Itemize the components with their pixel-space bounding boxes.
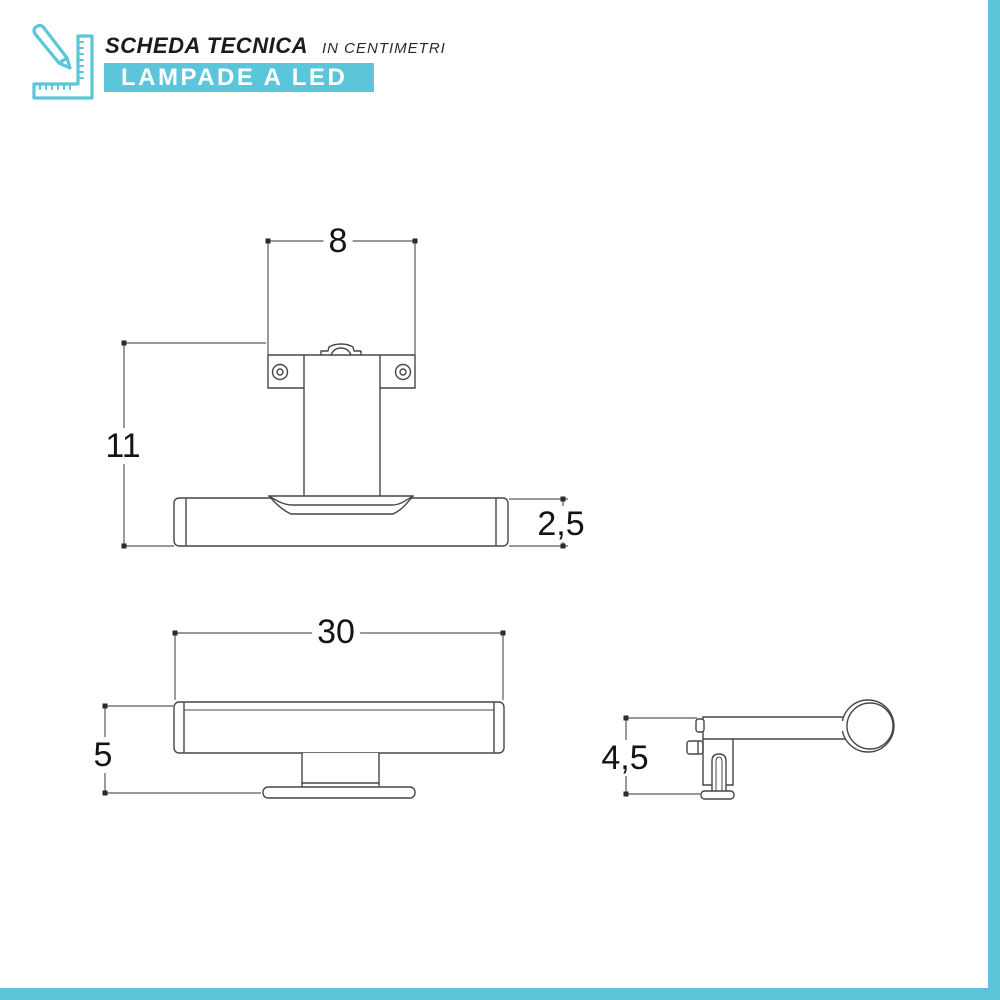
dim-label-height: 5 [89, 737, 118, 773]
technical-drawings [0, 0, 1000, 1000]
accent-border-right [988, 0, 1000, 1000]
side-view-drawing [687, 700, 894, 799]
dim-label-tube-diameter: 2,5 [532, 506, 589, 542]
accent-border-bottom [0, 988, 1000, 1000]
dim-label-overall-height: 11 [100, 428, 145, 464]
front-view-top-drawing [174, 344, 508, 546]
spec-sheet-page: SCHEDA TECNICA IN CENTIMETRI LAMPADE A L… [0, 0, 1000, 1000]
front-view-bottom-drawing [174, 702, 504, 798]
dim-label-plate-width: 8 [324, 223, 353, 259]
dim-label-width: 30 [312, 614, 360, 650]
dim-label-depth: 4,5 [596, 740, 653, 776]
